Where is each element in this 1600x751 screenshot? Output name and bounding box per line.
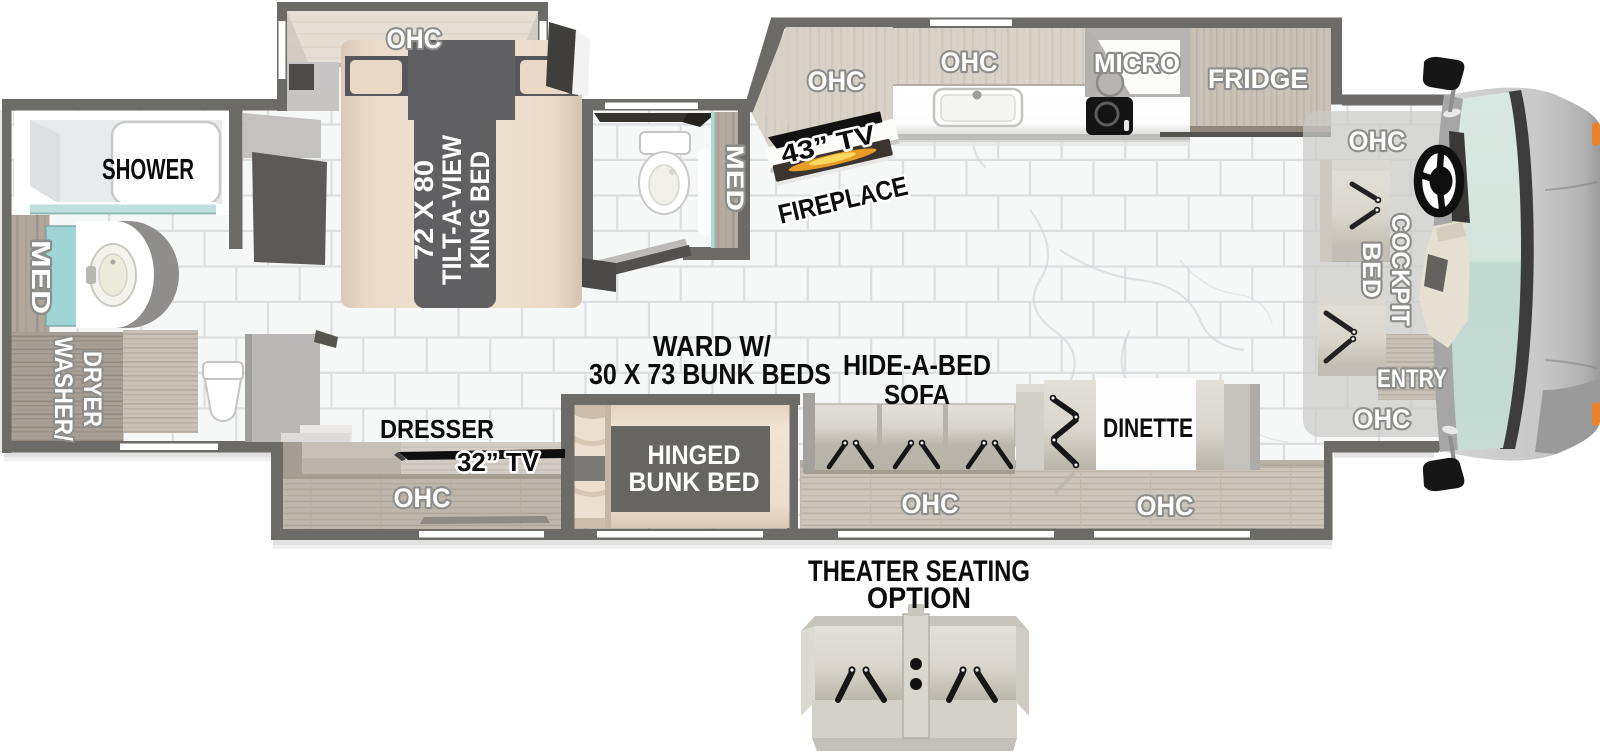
svg-text:KING BED: KING BED [465, 151, 495, 269]
svg-text:32” TV: 32” TV [457, 447, 540, 477]
svg-text:OHC: OHC [394, 483, 451, 513]
svg-text:MED: MED [26, 240, 56, 314]
svg-text:HIDE-A-BED: HIDE-A-BED [843, 350, 991, 382]
svg-text:OHC: OHC [1354, 404, 1411, 434]
svg-text:COCKPIT: COCKPIT [1386, 214, 1414, 326]
svg-text:SOFA: SOFA [884, 379, 950, 410]
svg-text:ENTRY: ENTRY [1377, 365, 1447, 393]
svg-text:DRESSER: DRESSER [380, 414, 494, 444]
svg-text:OPTION: OPTION [867, 582, 971, 615]
svg-text:HINGED: HINGED [648, 440, 741, 470]
svg-text:FRIDGE: FRIDGE [1208, 64, 1308, 94]
svg-text:TILT-A-VIEW: TILT-A-VIEW [437, 135, 467, 285]
svg-text:OHC: OHC [808, 66, 865, 96]
svg-text:30 X 73 BUNK BEDS: 30 X 73 BUNK BEDS [589, 359, 831, 391]
svg-text:OHC: OHC [902, 489, 959, 519]
svg-text:72 X 80: 72 X 80 [409, 160, 439, 260]
svg-text:DRYER: DRYER [78, 351, 106, 427]
svg-text:DINETTE: DINETTE [1103, 413, 1193, 443]
svg-text:OHC: OHC [1137, 491, 1194, 521]
svg-text:OHC: OHC [941, 47, 998, 77]
svg-text:MED: MED [721, 145, 748, 211]
svg-text:WASHER/: WASHER/ [49, 337, 77, 441]
svg-text:BED: BED [1357, 242, 1385, 298]
svg-text:OHC: OHC [1349, 126, 1406, 156]
svg-text:OHC: OHC [387, 24, 442, 54]
svg-text:BUNK BED: BUNK BED [629, 467, 760, 497]
svg-text:MICRO: MICRO [1094, 48, 1180, 78]
svg-text:SHOWER: SHOWER [102, 154, 194, 186]
